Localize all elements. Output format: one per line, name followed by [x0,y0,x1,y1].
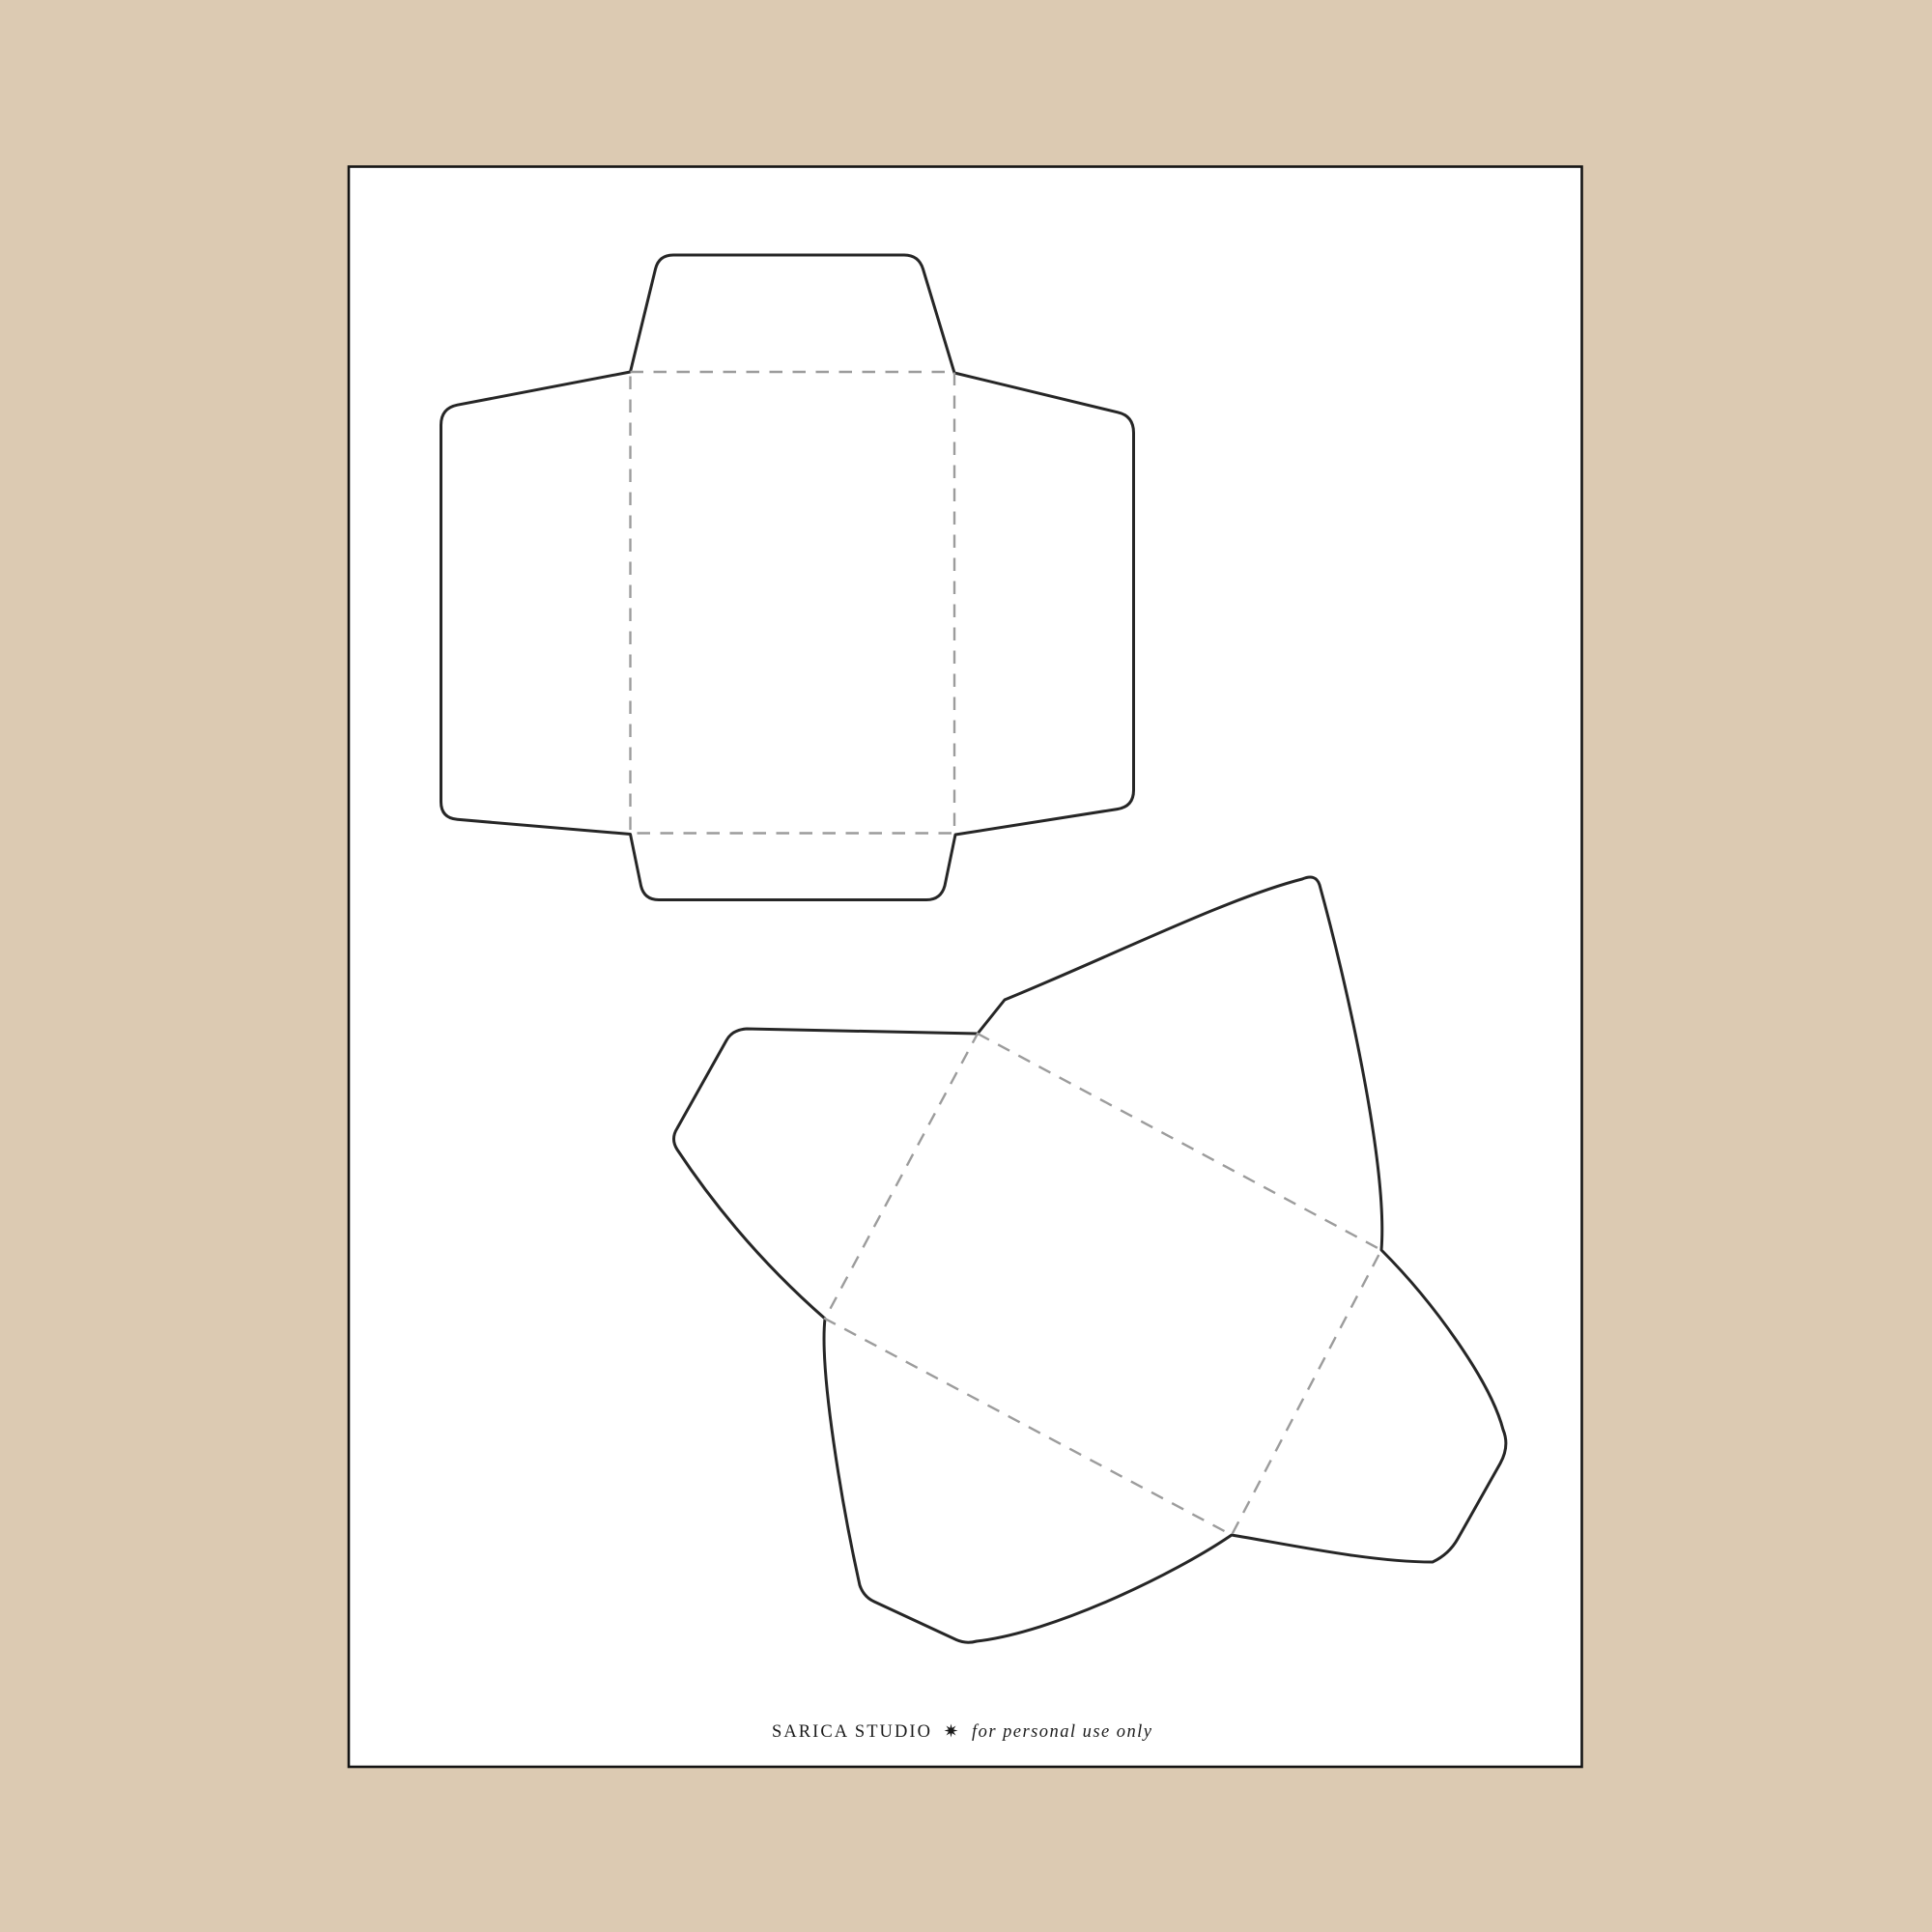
svg-text:for personal use only: for personal use only [972,1722,1152,1742]
svg-text:SARICA STUDIO: SARICA STUDIO [772,1722,930,1742]
